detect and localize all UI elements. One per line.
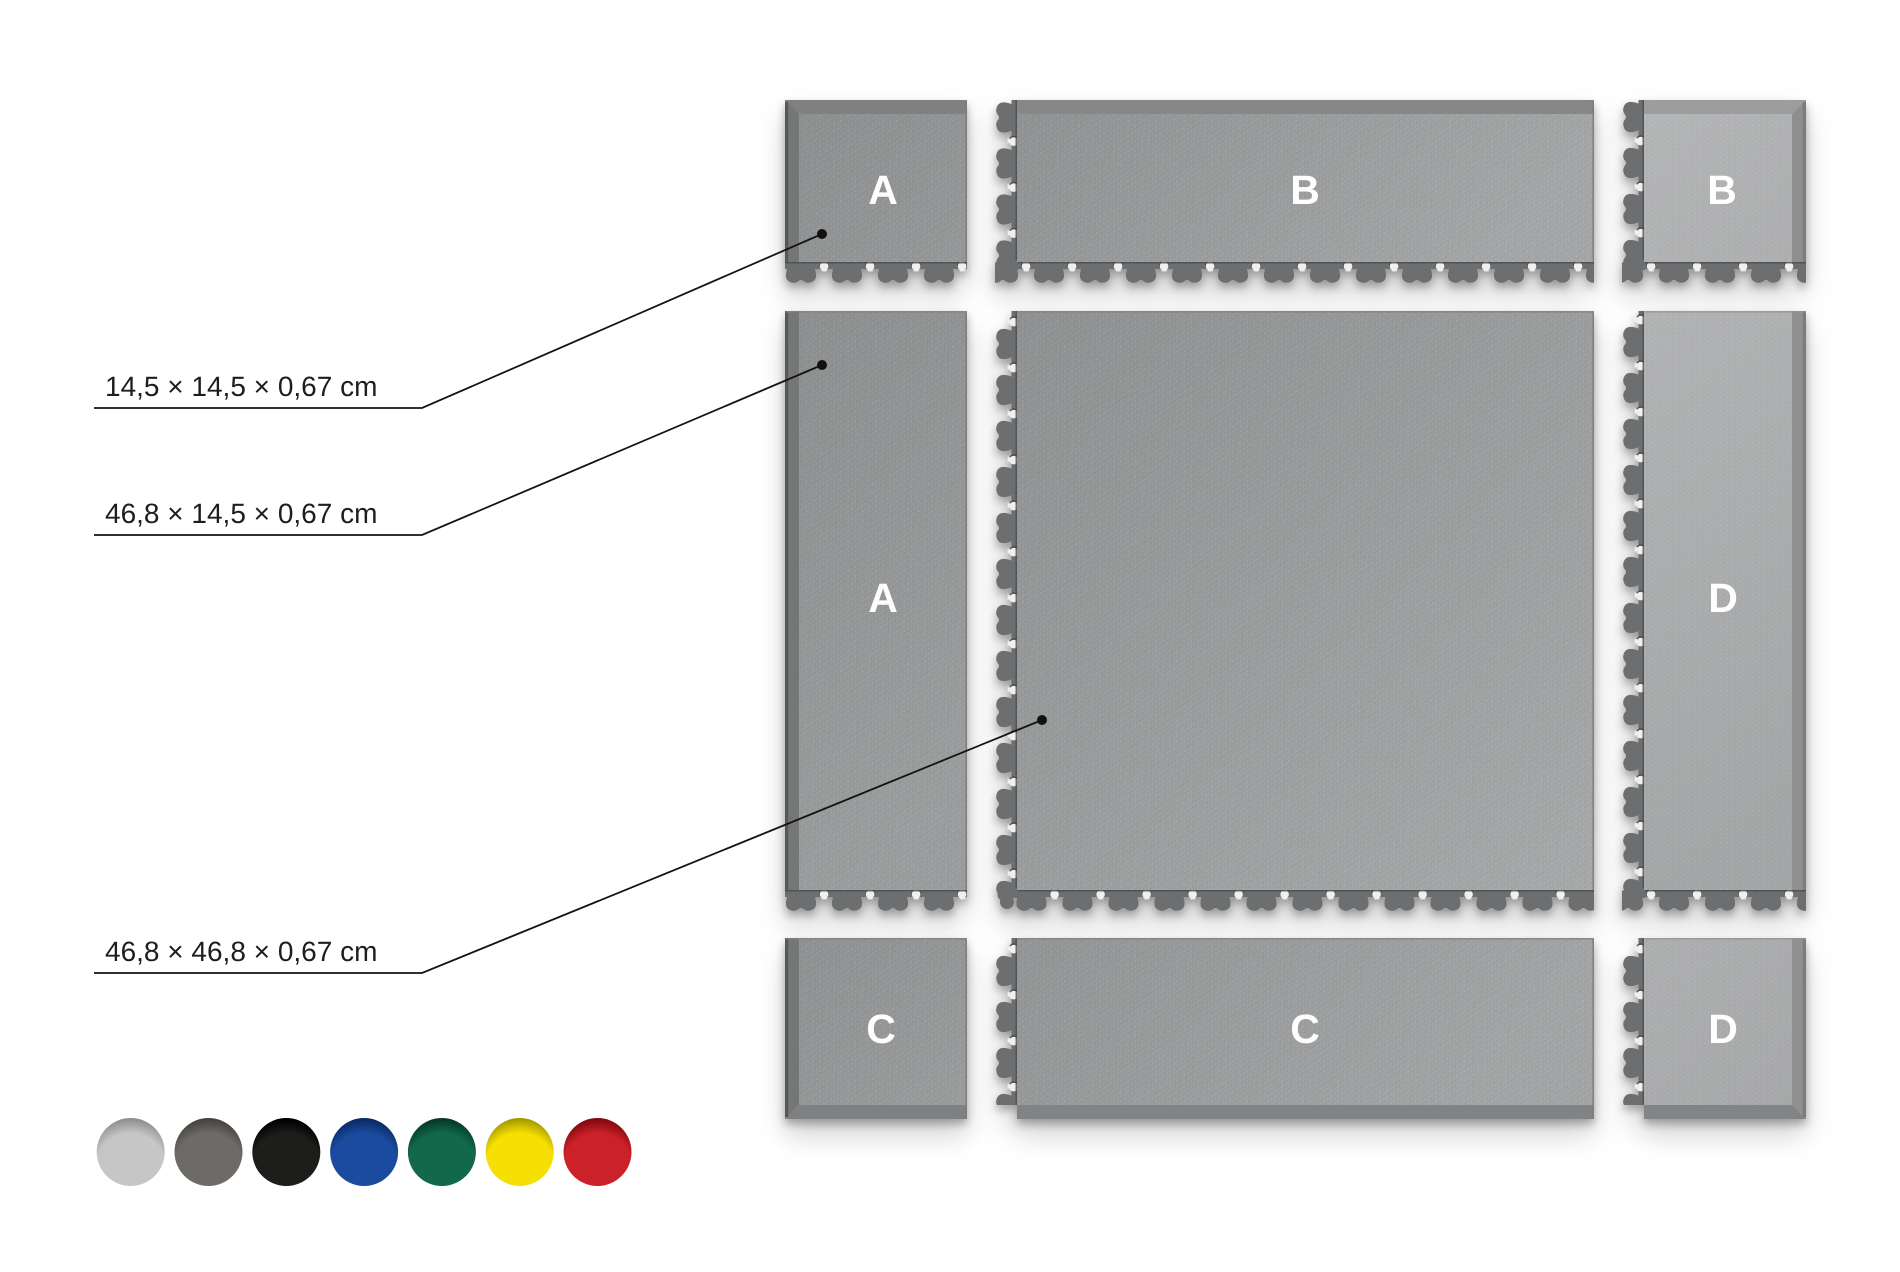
svg-text:46,8 × 14,5 × 0,67 cm: 46,8 × 14,5 × 0,67 cm (105, 498, 377, 529)
svg-text:D: D (1708, 1006, 1738, 1052)
svg-text:14,5 × 14,5 × 0,67 cm: 14,5 × 14,5 × 0,67 cm (105, 371, 377, 402)
svg-text:C: C (1290, 1006, 1320, 1052)
svg-text:B: B (1707, 167, 1737, 213)
svg-text:A: A (868, 167, 898, 213)
svg-text:C: C (866, 1006, 896, 1052)
svg-text:B: B (1290, 167, 1320, 213)
svg-text:46,8 × 46,8 × 0,67 cm: 46,8 × 46,8 × 0,67 cm (105, 936, 377, 967)
svg-text:A: A (868, 575, 898, 621)
svg-text:D: D (1708, 575, 1738, 621)
